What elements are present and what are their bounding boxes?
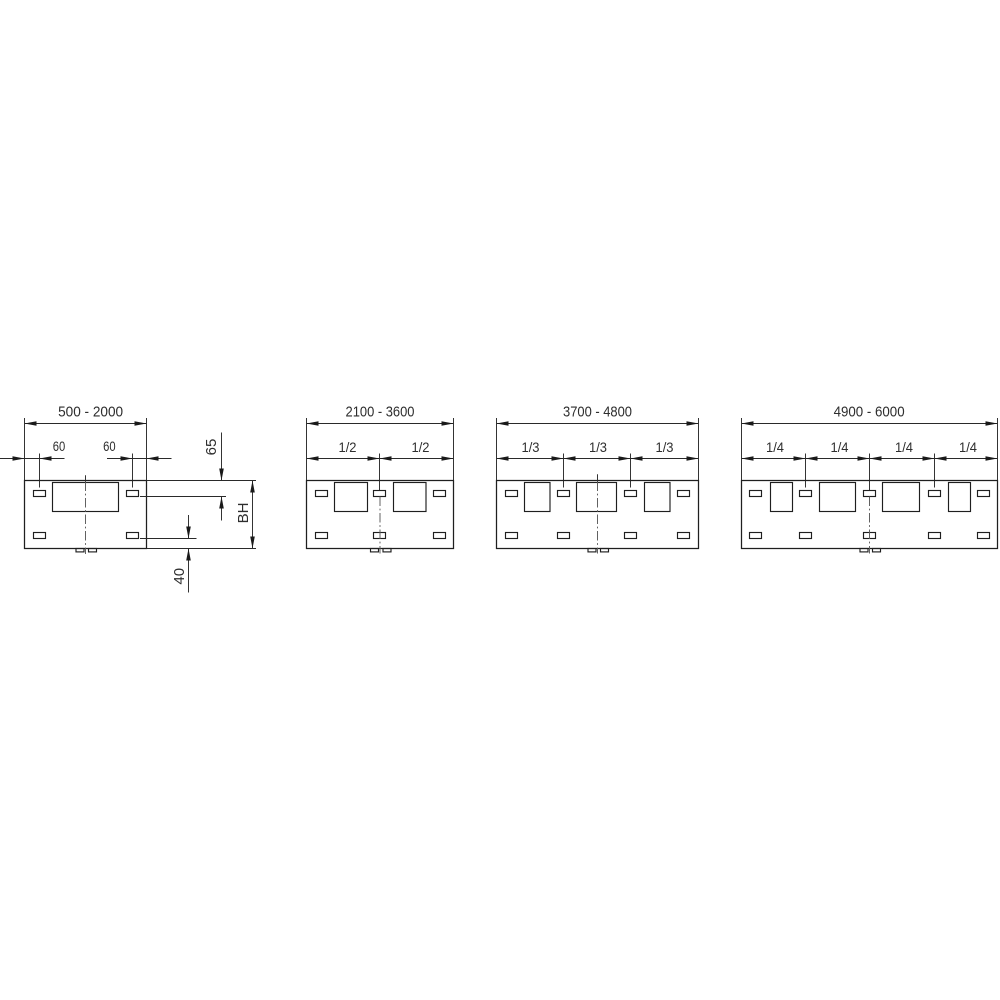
svg-text:1/2: 1/2: [412, 440, 430, 455]
svg-text:1/4: 1/4: [831, 440, 849, 455]
svg-text:2100 - 3600: 2100 - 3600: [346, 403, 415, 420]
svg-text:1/4: 1/4: [895, 440, 913, 455]
svg-text:60: 60: [103, 439, 116, 454]
svg-text:1/3: 1/3: [656, 440, 674, 455]
svg-text:3700 - 4800: 3700 - 4800: [563, 403, 632, 420]
svg-text:1/3: 1/3: [589, 440, 607, 455]
svg-text:500 - 2000: 500 - 2000: [58, 403, 123, 420]
svg-text:1/4: 1/4: [766, 440, 784, 455]
svg-text:65: 65: [203, 439, 220, 456]
svg-text:1/4: 1/4: [959, 440, 977, 455]
svg-text:1/2: 1/2: [339, 440, 357, 455]
svg-text:60: 60: [53, 439, 66, 454]
svg-text:BH: BH: [235, 503, 252, 524]
svg-text:40: 40: [171, 568, 188, 585]
svg-text:4900 - 6000: 4900 - 6000: [834, 403, 905, 420]
svg-text:1/3: 1/3: [522, 440, 540, 455]
